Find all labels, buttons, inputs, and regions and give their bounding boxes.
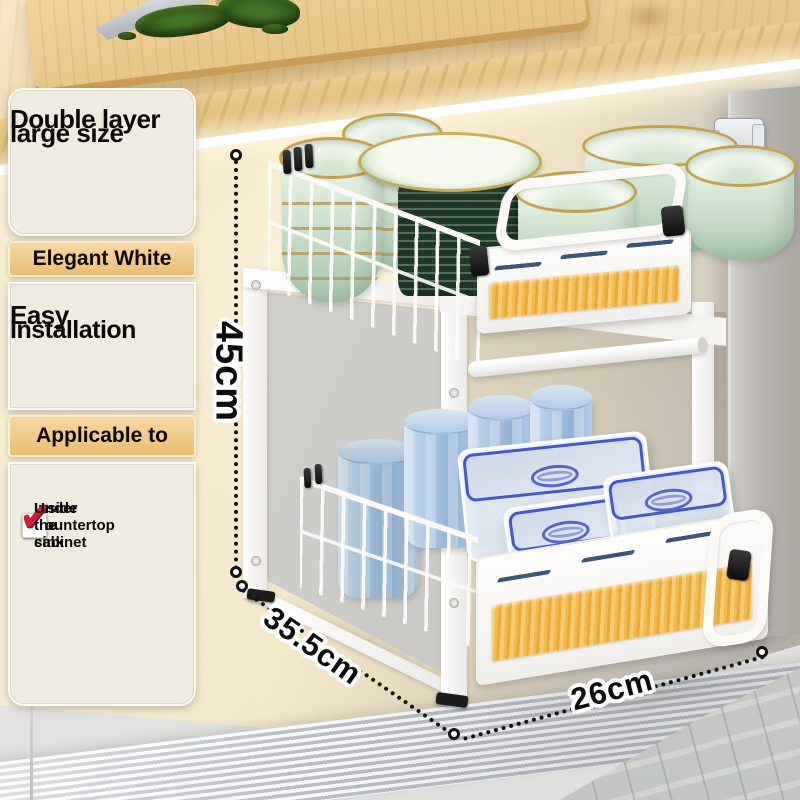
chopped-herbs [262,24,288,34]
dimension-endpoint [448,728,460,740]
counter-reflection [622,0,674,34]
basket-clip [314,464,322,484]
basket-clip [282,150,291,174]
basket-clip [303,468,311,488]
screw [251,556,261,566]
chopped-herbs [118,32,136,40]
screw [449,388,459,398]
cabinet-side-edge [30,700,33,800]
headline-box: Double layer large size [8,88,196,236]
dimension-endpoint [236,580,248,592]
product-photo-stage: 45cm 35.5cm 26cm Double layer large size… [0,0,800,800]
basket-clip [660,205,685,237]
dimension-endpoint [756,646,768,658]
dimension-endpoint [230,149,242,161]
bowl [688,160,794,260]
feature-line2: Installation [10,316,136,345]
applicable-checklist: ✔ Countertop ✔ Inside the cabinet ✔ Unde… [8,462,196,706]
color-badge-label: Elegant White [33,247,172,271]
checklist-label: Under the sink [34,500,77,551]
applicable-badge-label: Applicable to [36,424,168,448]
screw [251,280,261,290]
feature-box: Easy Installation [8,282,196,410]
dimension-endpoint [230,566,242,578]
headline-line2: large size [10,118,124,149]
bamboo-accent-strip [489,265,679,319]
color-badge: Elegant White [8,241,196,277]
applicable-badge: Applicable to [8,415,196,457]
info-panel: Double layer large size Elegant White Ea… [8,88,196,706]
basket-clip [293,147,302,171]
basket-clip [726,549,752,582]
height-dimension-label: 45cm [207,297,250,447]
basket-clip [304,144,313,168]
basket-clip [468,245,489,277]
